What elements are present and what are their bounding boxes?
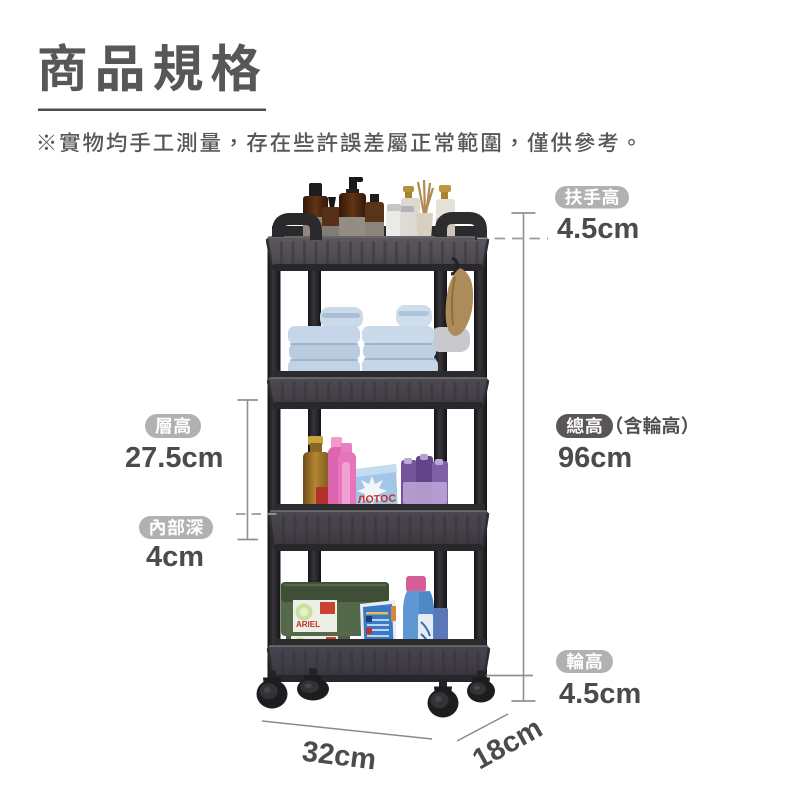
svg-text:4cm: 4cm	[146, 541, 204, 573]
svg-text:96cm: 96cm	[558, 442, 632, 474]
svg-text:4.5cm: 4.5cm	[557, 213, 639, 245]
svg-text:27.5cm: 27.5cm	[125, 442, 223, 474]
svg-text:ARIEL: ARIEL	[296, 620, 320, 629]
svg-text:4.5cm: 4.5cm	[559, 678, 641, 710]
svg-text:ЛОТОС: ЛОТОС	[358, 493, 397, 506]
